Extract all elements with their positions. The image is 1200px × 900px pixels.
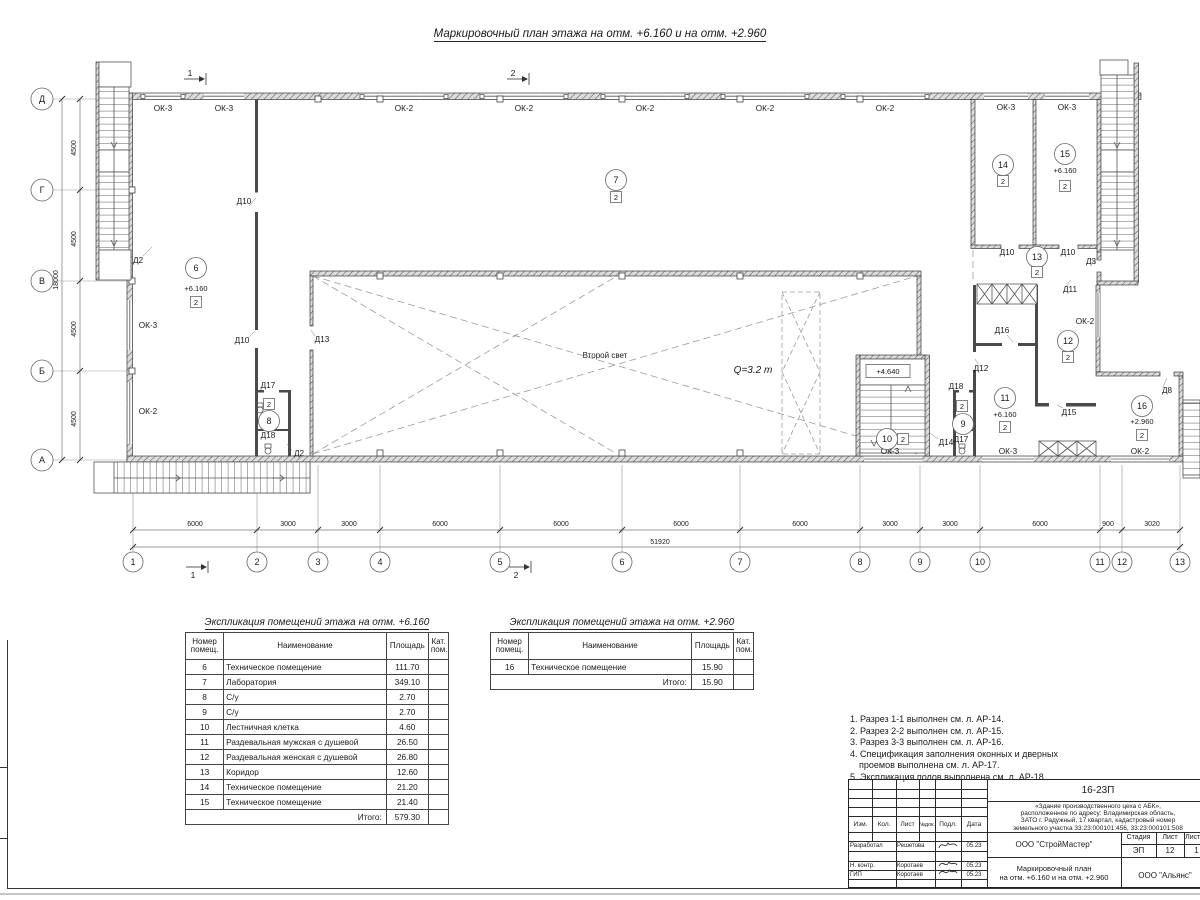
col-date: Дата: [961, 821, 987, 828]
role-name: Коротаев: [897, 863, 935, 869]
svg-text:12: 12: [1063, 336, 1073, 346]
svg-text:Б: Б: [39, 366, 45, 376]
role-label: Н. контр.: [850, 863, 896, 869]
section-marks: [184, 73, 531, 573]
svg-text:Д18: Д18: [261, 431, 276, 440]
svg-text:Д3: Д3: [1086, 257, 1097, 266]
svg-text:6000: 6000: [553, 521, 569, 528]
svg-text:6000: 6000: [1032, 521, 1048, 528]
col-kol: Кол.: [872, 821, 896, 828]
table-header-row: Номер помещ. Наименование Площадь Кат. п…: [186, 633, 449, 660]
role-date: 05.23: [961, 843, 987, 849]
svg-text:14: 14: [998, 160, 1008, 170]
table-row: 6Техническое помещение111.70: [186, 660, 449, 675]
svg-text:13: 13: [1175, 557, 1185, 567]
svg-text:2: 2: [1063, 182, 1067, 191]
svg-text:2: 2: [901, 435, 905, 444]
svg-text:ОК-2: ОК-2: [395, 104, 414, 113]
col-podp: Подл.: [935, 821, 961, 828]
svg-text:7: 7: [613, 175, 618, 185]
svg-text:ОК-2: ОК-2: [876, 104, 895, 113]
svg-text:Д13: Д13: [315, 335, 330, 344]
svg-text:4500: 4500: [71, 140, 78, 156]
svg-text:ОК-2: ОК-2: [515, 104, 534, 113]
svg-text:18000: 18000: [53, 270, 60, 290]
svg-text:ОК-3: ОК-3: [997, 103, 1016, 112]
doc-code: 16-23П: [987, 785, 1200, 796]
svg-text:+2.960: +2.960: [1130, 417, 1153, 426]
svg-text:+6.160: +6.160: [1053, 166, 1076, 175]
svg-text:Д10: Д10: [1000, 248, 1015, 257]
table2-title: Экспликация помещений этажа на отм. +2.9…: [490, 617, 754, 628]
svg-text:51920: 51920: [650, 539, 670, 546]
title-block: Изм. Кол. Лист №док. Подл. Дата Разработ…: [848, 779, 1200, 888]
table-row: 11Раздевальная мужская с душевой26.50: [186, 735, 449, 750]
svg-text:ОК-2: ОК-2: [1131, 447, 1150, 456]
svg-text:2: 2: [267, 400, 271, 409]
svg-text:5: 5: [497, 557, 502, 567]
svg-text:10: 10: [882, 434, 892, 444]
svg-text:6000: 6000: [432, 521, 448, 528]
svg-text:4500: 4500: [71, 231, 78, 247]
sheets-label: Листов: [1184, 834, 1200, 841]
svg-text:Д16: Д16: [995, 326, 1010, 335]
table-row: 15Техническое помещение21.40: [186, 795, 449, 810]
svg-text:2: 2: [1066, 353, 1070, 362]
crane-symbol: [782, 292, 820, 454]
table-row: 10Лестничная клетка4.60: [186, 720, 449, 735]
table-row: 12Раздевальная женская с душевой26.80: [186, 750, 449, 765]
svg-text:2: 2: [1035, 268, 1039, 277]
svg-text:Д10: Д10: [235, 336, 250, 345]
role-label: Разработал: [850, 843, 896, 849]
svg-text:ОК-2: ОК-2: [756, 104, 775, 113]
drawing-title: Маркировочный план на отм. +6.160 и на о…: [987, 864, 1121, 882]
svg-text:11: 11: [1000, 393, 1009, 403]
table-row: 9С/у2.70: [186, 705, 449, 720]
svg-text:8: 8: [857, 557, 862, 567]
svg-text:1: 1: [191, 570, 196, 580]
svg-text:ОК-2: ОК-2: [636, 104, 655, 113]
svg-text:900: 900: [1102, 521, 1114, 528]
svg-text:2: 2: [511, 68, 516, 78]
svg-text:6000: 6000: [187, 521, 203, 528]
sheet-label: Лист: [1156, 834, 1184, 841]
svg-text:3000: 3000: [882, 521, 898, 528]
sheet-value: 12: [1156, 846, 1184, 855]
drawing-title-line: на отм. +6.160 и на отм. +2.960: [987, 873, 1121, 882]
table-header-row: Номер помещ. Наименование Площадь Кат. п…: [491, 633, 754, 660]
crane-load-label: Q=3.2 т: [734, 365, 773, 376]
svg-text:2: 2: [514, 570, 519, 580]
note-line: 4. Спецификация заполнения оконных и две…: [850, 749, 1180, 761]
notes-list: 1. Разрез 1-1 выполнен см. л. АР-14. 2. …: [850, 714, 1180, 783]
svg-text:Д: Д: [39, 94, 45, 104]
role-label: ГИП: [850, 872, 896, 878]
svg-text:15: 15: [1060, 149, 1070, 159]
col-list: Лист: [896, 821, 919, 828]
role-date: 05.23: [961, 863, 987, 869]
stage-label: Стадия: [1121, 834, 1156, 841]
svg-text:Д17: Д17: [261, 381, 276, 390]
drawing-title-line: Маркировочный план: [987, 864, 1121, 873]
project-description: «Здание производственного цеха с АБК», р…: [989, 803, 1200, 832]
role-name: Решетова: [897, 843, 935, 849]
svg-text:Д2: Д2: [133, 256, 144, 265]
sheets-value: 1: [1184, 846, 1200, 855]
org2: ООО "Альянс": [1121, 871, 1200, 880]
frame-tick: [0, 838, 7, 839]
svg-text:ОК-3: ОК-3: [154, 104, 173, 113]
floor-plan: 6000 3000 3000 6000 6000 6000 6000 3000 …: [0, 0, 1200, 610]
svg-text:10: 10: [975, 557, 985, 567]
svg-text:6: 6: [619, 557, 624, 567]
svg-text:Д14: Д14: [939, 438, 954, 447]
svg-text:6: 6: [193, 263, 198, 273]
note-line: 1. Разрез 1-1 выполнен см. л. АР-14.: [850, 714, 1180, 726]
table-elev-6160: Экспликация помещений этажа на отм. +6.1…: [185, 617, 449, 825]
svg-text:4500: 4500: [71, 321, 78, 337]
svg-text:7: 7: [737, 557, 742, 567]
svg-text:ОК-2: ОК-2: [139, 407, 158, 416]
table-row: 13Коридор12.60: [186, 765, 449, 780]
svg-text:А: А: [39, 455, 45, 465]
frame-bottom-line: [7, 888, 1200, 889]
svg-text:Д2: Д2: [294, 449, 305, 458]
svg-text:1: 1: [188, 68, 193, 78]
svg-text:Д10: Д10: [237, 197, 252, 206]
stage-value: ЭП: [1121, 846, 1156, 855]
svg-text:Д8: Д8: [1162, 386, 1173, 395]
svg-text:3000: 3000: [280, 521, 296, 528]
table-row: 14Техническое помещение21.20: [186, 780, 449, 795]
svg-text:ОК-3: ОК-3: [999, 447, 1018, 456]
signature-mark: [937, 859, 959, 878]
svg-text:4: 4: [377, 557, 382, 567]
entrance-ramp: [94, 462, 310, 493]
table-total-row: Итого:15.90: [491, 675, 754, 690]
table-total-row: Итого:579.30: [186, 810, 449, 825]
stair-right-tower: [1100, 60, 1134, 250]
table-row: 8С/у2.70: [186, 690, 449, 705]
svg-text:4500: 4500: [71, 411, 78, 427]
svg-text:3: 3: [315, 557, 320, 567]
svg-text:6000: 6000: [792, 521, 808, 528]
page-edge-shadow: [0, 893, 1200, 895]
svg-text:2: 2: [1001, 177, 1005, 186]
svg-text:2: 2: [614, 193, 618, 202]
svg-text:6000: 6000: [673, 521, 689, 528]
svg-text:3000: 3000: [942, 521, 958, 528]
project-line: ЗАТО г. Радужный, 17 квартал, кадастровы…: [989, 817, 1200, 824]
signature-mark: [937, 839, 959, 851]
svg-text:Д18: Д18: [949, 382, 964, 391]
stair-left-tower: [99, 62, 131, 280]
svg-text:Д17: Д17: [954, 435, 969, 444]
svg-text:3020: 3020: [1144, 521, 1160, 528]
frame-left-line: [7, 640, 8, 888]
exterior-walls: [96, 62, 1183, 462]
second-light-label: Второй свет: [583, 351, 628, 360]
svg-text:Д10: Д10: [1061, 248, 1076, 257]
note-line: 2. Разрез 2-2 выполнен см. л. АР-15.: [850, 726, 1180, 738]
svg-text:13: 13: [1032, 252, 1042, 262]
svg-text:3000: 3000: [341, 521, 357, 528]
svg-text:ОК-3: ОК-3: [139, 321, 158, 330]
svg-text:2: 2: [1140, 431, 1144, 440]
svg-text:2: 2: [194, 298, 198, 307]
svg-text:2: 2: [1003, 423, 1007, 432]
col-ndok: №док.: [919, 822, 935, 828]
project-line: земельного участка 33:23:000101:456, 33:…: [989, 825, 1200, 832]
org1: ООО "СтройМастер": [987, 840, 1121, 849]
svg-text:2: 2: [254, 557, 259, 567]
svg-text:8: 8: [266, 416, 271, 426]
svg-text:ОК-3: ОК-3: [1058, 103, 1077, 112]
svg-text:9: 9: [960, 419, 965, 429]
section-mark-labels: 1 2 1 2: [188, 68, 519, 580]
svg-text:1: 1: [130, 557, 135, 567]
stair-bottom-right: [1183, 400, 1200, 478]
table1: Номер помещ. Наименование Площадь Кат. п…: [185, 632, 449, 825]
svg-text:ОК-2: ОК-2: [1076, 317, 1095, 326]
table-row: 7Лаборатория349.10: [186, 675, 449, 690]
svg-text:ОК-3: ОК-3: [215, 104, 234, 113]
svg-text:+6.160: +6.160: [184, 284, 207, 293]
drawing-sheet: { "page": {"title": "Маркировочный план …: [0, 0, 1200, 900]
table2: Номер помещ. Наименование Площадь Кат. п…: [490, 632, 754, 690]
frame-tick: [0, 767, 7, 768]
role-date: 05.23: [961, 872, 987, 878]
note-line: 3. Разрез 3-3 выполнен см. л. АР-16.: [850, 737, 1180, 749]
svg-text:12: 12: [1117, 557, 1127, 567]
col-izm: Изм.: [849, 821, 872, 828]
svg-text:Д15: Д15: [1062, 408, 1077, 417]
svg-text:+4.640: +4.640: [876, 367, 899, 376]
svg-text:16: 16: [1137, 401, 1147, 411]
svg-text:В: В: [39, 276, 45, 286]
note-line: проемов выполнена см. л. АР-17.: [859, 760, 1180, 772]
window-openings: [128, 94, 1170, 462]
svg-text:Д12: Д12: [974, 364, 989, 373]
axis-bubbles: [31, 88, 1190, 572]
role-name: Коротаев: [897, 872, 935, 878]
table1-title: Экспликация помещений этажа на отм. +6.1…: [185, 617, 449, 628]
svg-text:9: 9: [917, 557, 922, 567]
table-row: 16Техническое помещение15.90: [491, 660, 754, 675]
svg-text:Д11: Д11: [1063, 285, 1077, 294]
table-elev-2960: Экспликация помещений этажа на отм. +2.9…: [490, 617, 754, 690]
svg-text:11: 11: [1095, 557, 1104, 567]
svg-text:Г: Г: [40, 185, 45, 195]
svg-text:+6.160: +6.160: [993, 410, 1016, 419]
svg-text:2: 2: [960, 402, 964, 411]
